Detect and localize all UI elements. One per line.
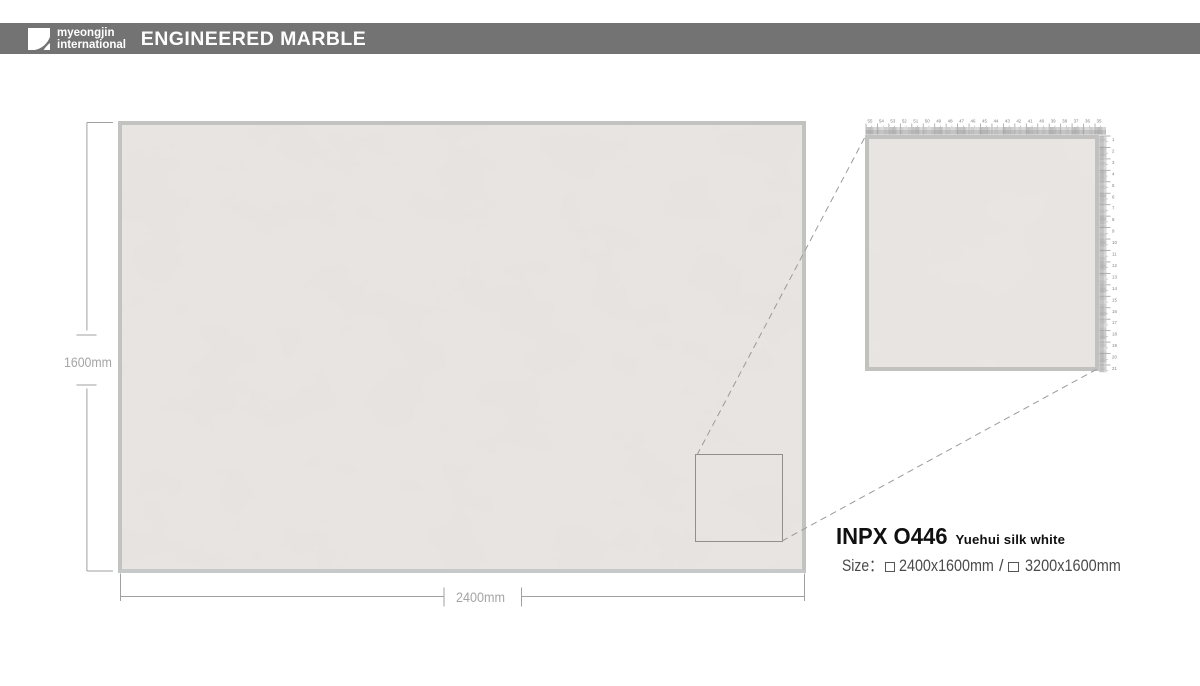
svg-text:44: 44 (993, 119, 998, 124)
svg-text:46: 46 (971, 119, 976, 124)
svg-text:45: 45 (982, 119, 987, 124)
svg-text:4: 4 (1112, 171, 1115, 176)
svg-text:12: 12 (1112, 263, 1117, 268)
svg-text:15: 15 (1112, 297, 1117, 302)
svg-text:50: 50 (925, 119, 930, 124)
svg-text:43: 43 (1005, 119, 1010, 124)
svg-text:48: 48 (948, 119, 953, 124)
svg-text:11: 11 (1112, 252, 1117, 257)
svg-text:1: 1 (1112, 137, 1115, 142)
svg-text:55: 55 (868, 119, 873, 124)
svg-text:6: 6 (1112, 194, 1115, 199)
svg-text:18: 18 (1112, 332, 1117, 337)
svg-text:49: 49 (936, 119, 941, 124)
svg-text:17: 17 (1112, 320, 1117, 325)
svg-text:9: 9 (1112, 229, 1115, 234)
svg-text:41: 41 (1028, 119, 1033, 124)
svg-text:3: 3 (1112, 160, 1115, 165)
svg-text:36: 36 (1085, 119, 1090, 124)
svg-text:19: 19 (1112, 343, 1117, 348)
svg-text:54: 54 (879, 119, 884, 124)
svg-text:47: 47 (959, 119, 964, 124)
svg-text:38: 38 (1062, 119, 1067, 124)
svg-text:7: 7 (1112, 206, 1115, 211)
svg-text:39: 39 (1051, 119, 1056, 124)
svg-text:21: 21 (1112, 366, 1117, 371)
svg-text:10: 10 (1112, 240, 1117, 245)
svg-text:35: 35 (1097, 119, 1102, 124)
svg-text:20: 20 (1112, 355, 1117, 360)
svg-text:52: 52 (902, 119, 907, 124)
svg-text:42: 42 (1016, 119, 1021, 124)
svg-text:2: 2 (1112, 148, 1115, 153)
svg-text:51: 51 (913, 119, 918, 124)
svg-text:13: 13 (1112, 274, 1117, 279)
svg-text:37: 37 (1074, 119, 1079, 124)
svg-text:40: 40 (1039, 119, 1044, 124)
svg-text:16: 16 (1112, 309, 1117, 314)
svg-text:53: 53 (890, 119, 895, 124)
svg-text:8: 8 (1112, 217, 1115, 222)
svg-text:5: 5 (1112, 183, 1115, 188)
svg-text:14: 14 (1112, 286, 1117, 291)
